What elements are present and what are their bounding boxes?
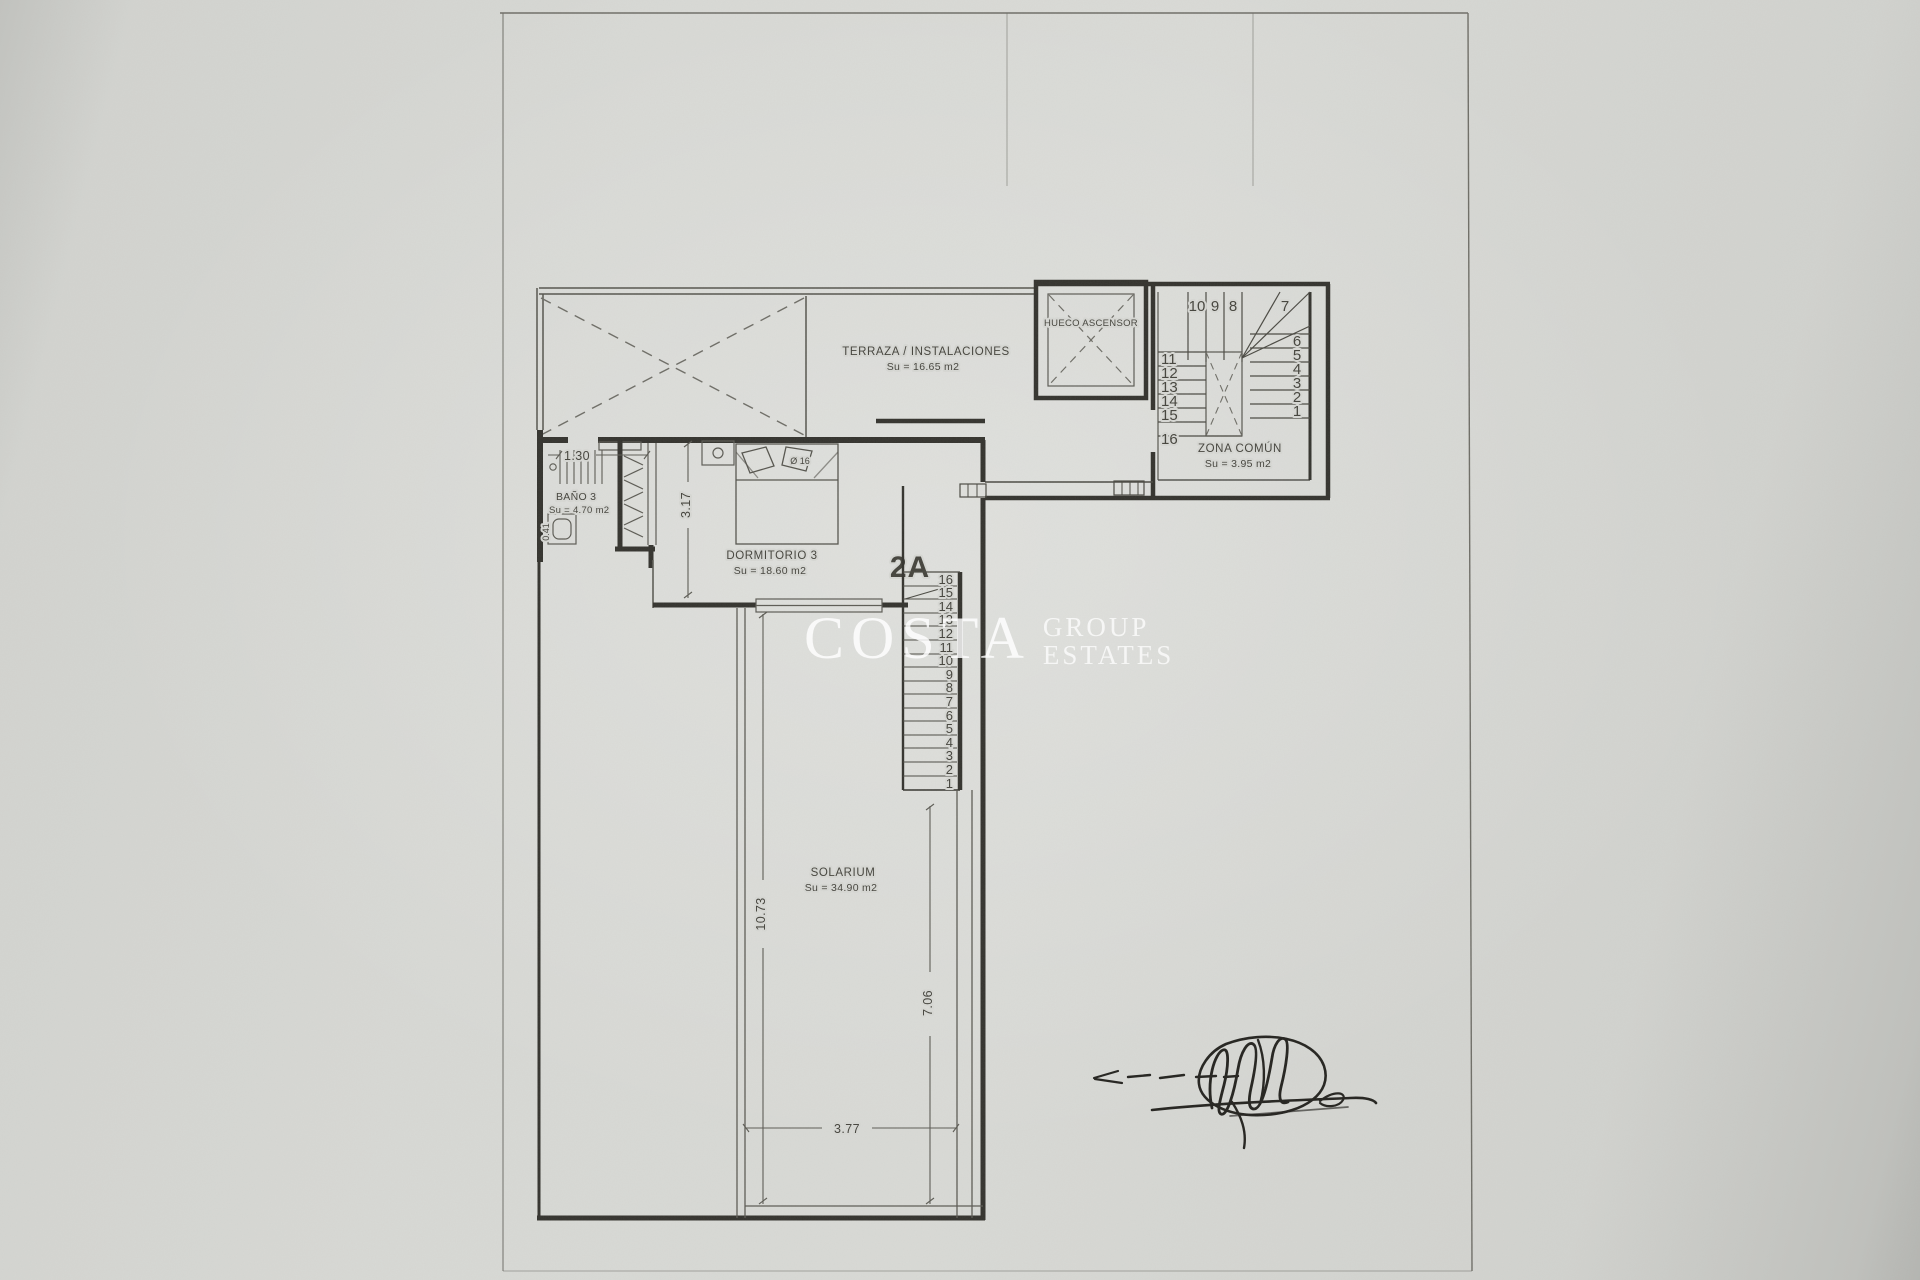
floor-plan-drawing: TERRAZA / INSTALACIONES Su = 16.65 m2 HU… <box>0 0 1920 1280</box>
scanned-floor-plan-page: TERRAZA / INSTALACIONES Su = 16.65 m2 HU… <box>0 0 1920 1280</box>
paper-texture <box>0 0 1920 1280</box>
